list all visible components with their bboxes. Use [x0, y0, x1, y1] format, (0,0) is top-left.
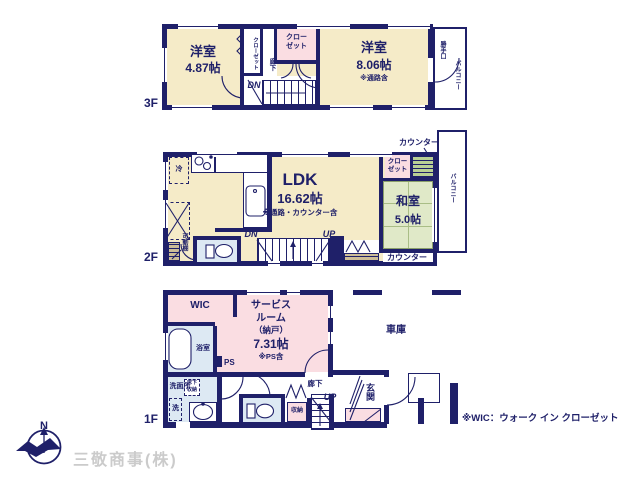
room-large-name: 洋室: [326, 41, 422, 56]
window: [388, 24, 430, 29]
floor-label-3f: 3F: [140, 97, 162, 111]
underfloor-l2: 収納: [184, 388, 200, 394]
vanity-sink: [189, 402, 217, 422]
garage-label: 車庫: [380, 325, 412, 337]
back-door-label: 勝手口: [435, 31, 445, 69]
fridge-label: 冷: [169, 166, 189, 174]
ldk-name: LDK: [255, 170, 345, 190]
garage-wall-dash: [432, 290, 461, 295]
window: [282, 152, 328, 157]
window: [392, 105, 425, 110]
window: [172, 105, 212, 110]
counter-top-2f: [412, 155, 434, 178]
washroom-ext-door: [176, 422, 190, 428]
window: [178, 24, 218, 29]
closet-main-l2: ゼット: [277, 43, 316, 51]
underfloor-l1: 床下: [184, 381, 200, 387]
hallway-label-3f: 廊下: [264, 52, 275, 76]
garage-wall-stub: [418, 398, 424, 424]
window: [328, 332, 333, 344]
wall: [240, 29, 244, 105]
service-l1: サービス: [226, 300, 316, 312]
ps-label: PS: [224, 358, 242, 367]
bath-label: 浴室: [191, 345, 215, 353]
garage-step: [408, 373, 440, 403]
garage-wall-right: [450, 383, 458, 424]
hallway-label-1f: 廊下: [300, 380, 330, 389]
footnote: ※WIC：ウォーク イン クローゼット: [462, 414, 640, 425]
window: [247, 290, 280, 295]
window: [162, 48, 167, 82]
window: [328, 306, 333, 318]
service-l2: ルーム: [226, 313, 316, 325]
tatami-size: 5.0帖: [383, 214, 433, 227]
wall: [330, 236, 344, 266]
service-l3: （納戸）: [226, 326, 316, 336]
stairs-2f: [257, 238, 330, 262]
window: [287, 290, 300, 295]
garage-wall-dash: [353, 290, 382, 295]
window: [163, 162, 168, 190]
entrance-label: 玄関: [362, 379, 375, 405]
balcony-label-2f: バルコニー: [444, 162, 455, 214]
closet-2f-l1: クロー: [385, 158, 410, 165]
stairs-3f: [262, 80, 316, 105]
wall: [281, 394, 285, 422]
compass-icon: [16, 427, 61, 464]
entrance-step: [345, 408, 381, 422]
storage-label: 収納: [287, 408, 307, 415]
balcony-label-3f: バルコニー: [449, 52, 460, 98]
ldk-note: ※通路・カウンター含: [245, 209, 355, 218]
counter-top-label: カウンター: [396, 138, 442, 147]
room-small-name: 洋室: [168, 45, 238, 60]
company-name: 三敬商事(株): [73, 446, 178, 470]
wic-label: WIC: [175, 300, 225, 312]
fold-door-bg-2f: [344, 240, 379, 253]
wall: [260, 29, 263, 76]
window: [312, 261, 323, 266]
window: [163, 200, 168, 228]
compass-north-label: N: [40, 420, 48, 432]
ldk-size: 16.62帖: [255, 192, 345, 207]
window: [197, 152, 237, 157]
toilet-room-1f: [243, 398, 281, 422]
wall: [316, 29, 320, 105]
stairs-down-3f: DN: [245, 80, 263, 90]
closet-main-l1: クロー: [277, 34, 316, 42]
ps-shaft: [214, 356, 222, 367]
room-large-note: ※通路含: [326, 75, 422, 83]
counter-bottom-label: カウンター: [384, 253, 430, 262]
back-door-gap-3f: [428, 58, 433, 82]
closet-side-label: クローゼット: [246, 31, 258, 75]
wall: [274, 60, 316, 64]
tatami-name: 和室: [383, 195, 433, 209]
service-size: 7.31帖: [226, 338, 316, 352]
wall: [217, 377, 222, 422]
window: [268, 261, 280, 266]
wall: [163, 422, 387, 428]
service-door-gap: [305, 372, 328, 377]
stairs-up-1f: UP: [318, 392, 342, 402]
wall: [384, 370, 389, 377]
wall: [384, 405, 389, 424]
shelf-label: 可動棚: [177, 226, 187, 258]
window: [297, 24, 350, 29]
floor-label-2f: 2F: [140, 251, 162, 265]
window: [330, 105, 373, 110]
toilet-room-2f: [197, 240, 237, 262]
laundry-label: 洗: [169, 405, 182, 413]
counter-bottom-2f: [344, 253, 379, 262]
floor-label-1f: 1F: [140, 413, 162, 427]
floorplan-canvas: 3F 洋室 4.87帖 クローゼット クロー ゼット 廊下 DN 洋室 8.06…: [0, 0, 640, 480]
wall: [333, 370, 389, 375]
wall: [237, 236, 241, 262]
window: [350, 152, 392, 157]
window: [163, 333, 168, 360]
stairs-down-2f: DN: [242, 229, 260, 239]
room-large-size: 8.06帖: [326, 59, 422, 73]
closet-2f-l2: ゼット: [385, 166, 410, 173]
stairs-up-2f: UP: [320, 229, 338, 239]
room-small-size: 4.87帖: [168, 62, 238, 76]
